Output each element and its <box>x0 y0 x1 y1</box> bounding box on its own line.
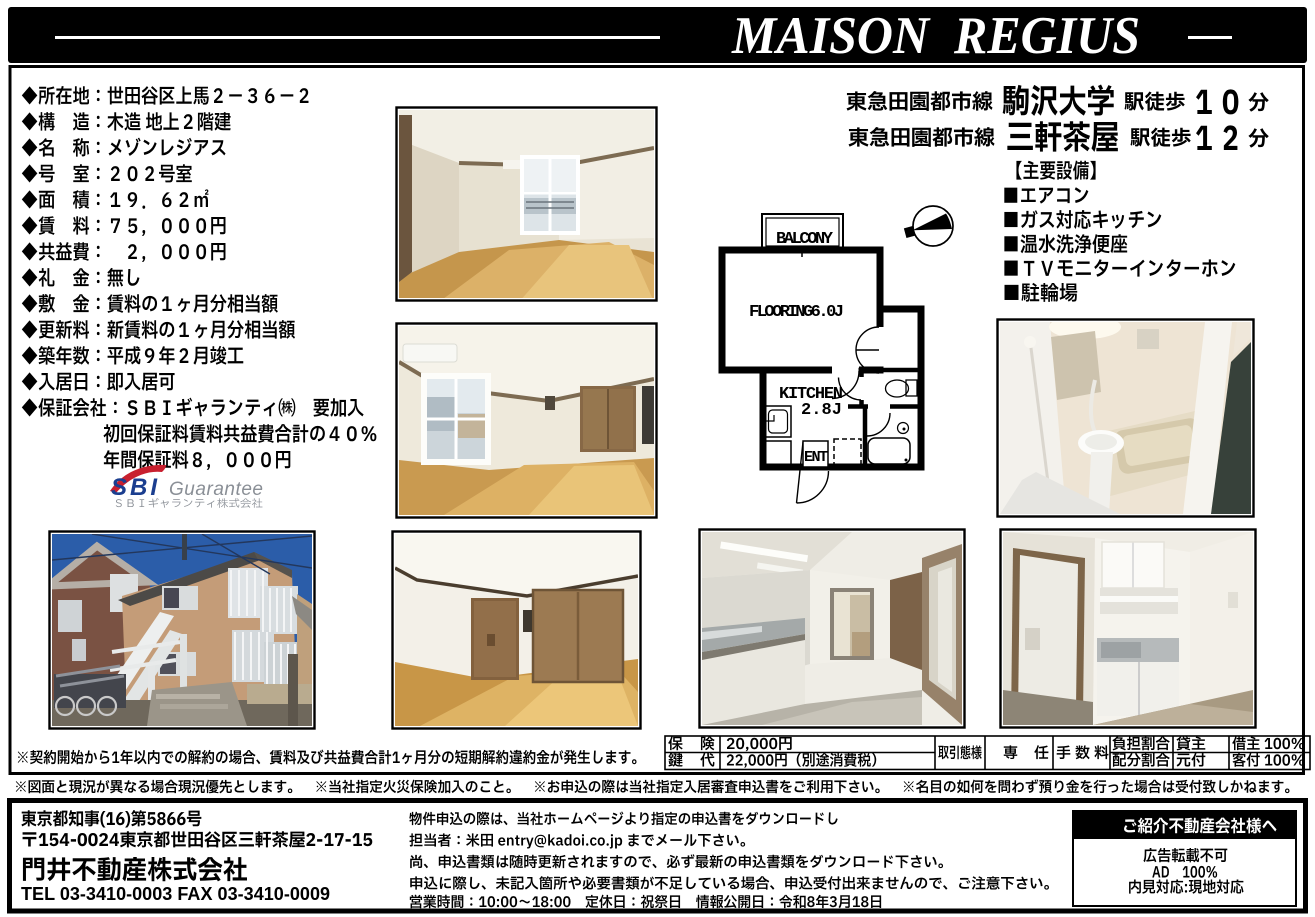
svg-text:SBI: SBI <box>111 474 158 501</box>
svg-text:Guarantee: Guarantee <box>169 479 263 500</box>
svg-text:2.8J: 2.8J <box>801 401 842 420</box>
svg-text:BALCONY: BALCONY <box>776 230 834 249</box>
svg-text:MAISON REGIUS: MAISON REGIUS <box>731 7 1140 65</box>
svg-text:ENT: ENT <box>804 449 828 466</box>
svg-text:TEL 03-3410-0003 FAX 03-3410-0: TEL 03-3410-0003 FAX 03-3410-0009 <box>21 884 330 904</box>
svg-text:FLOORING6.0J: FLOORING6.0J <box>749 303 844 322</box>
